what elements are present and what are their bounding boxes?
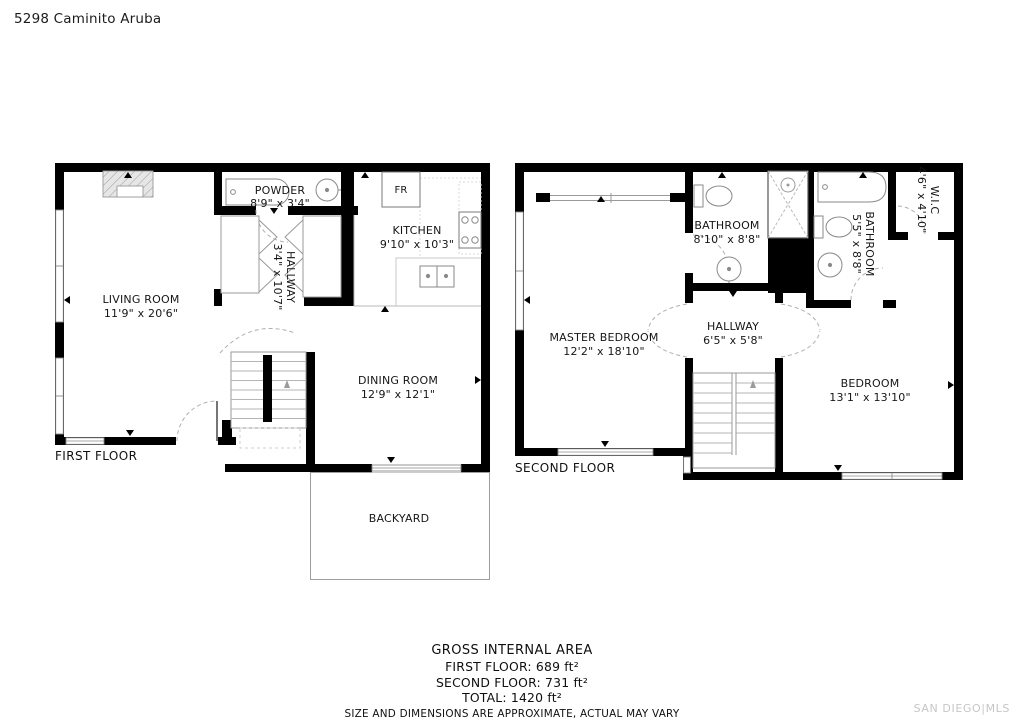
wic-label: W.I.C: [928, 186, 941, 215]
summary-disclaimer: SIZE AND DIMENSIONS ARE APPROXIMATE, ACT…: [0, 707, 1024, 721]
bathroom1-sink-icon: [717, 257, 741, 283]
summary-heading: GROSS INTERNAL AREA: [0, 643, 1024, 659]
bathroom2-label: BATHROOM: [863, 211, 876, 276]
powder-label: POWDER: [255, 184, 306, 197]
area-summary: GROSS INTERNAL AREA FIRST FLOOR: 689 ft²…: [0, 643, 1024, 721]
bedroom-dims: 13'1" x 13'10": [829, 391, 910, 404]
fridge-label: FR: [394, 185, 407, 196]
mls-watermark: SAN DIEGO|MLS: [914, 702, 1010, 715]
powder-dims: 8'9" x 3'4": [250, 197, 310, 210]
first-floor-plan: FR LIVING ROOM 11'9" x 20'6" POWDER 8'9"…: [55, 163, 490, 525]
hallway2-dims: 6'5" x 5'8": [703, 334, 763, 347]
master-closet-doors: [550, 193, 670, 203]
master-bedroom-label: MASTER BEDROOM: [549, 331, 658, 344]
wic-dims: 4'6" x 4'10": [915, 166, 928, 233]
living-room-dims: 11'9" x 20'6": [104, 307, 178, 320]
backyard-outline: [311, 473, 490, 580]
second-floor-label: SECOND FLOOR: [515, 461, 615, 475]
kitchen-label: KITCHEN: [392, 224, 441, 237]
summary-total: TOTAL: 1420 ft²: [0, 690, 1024, 706]
summary-first-floor: FIRST FLOOR: 689 ft²: [0, 659, 1024, 675]
hallway2-label: HALLWAY: [707, 320, 759, 333]
second-floor-plan: MASTER BEDROOM 12'2" x 18'10" BATHROOM 8…: [515, 163, 963, 480]
staircase-first-floor: [231, 352, 306, 448]
fridge-box: FR: [382, 172, 420, 207]
bedroom-label: BEDROOM: [841, 377, 900, 390]
master-bedroom-dims: 12'2" x 18'10": [563, 345, 644, 358]
staircase-second-floor: [693, 373, 775, 468]
hallway1-dims: 3'4" x 10'7": [271, 243, 284, 310]
dining-room-dims: 12'9" x 12'1": [361, 388, 435, 401]
dining-room-label: DINING ROOM: [358, 374, 438, 387]
bathroom1-dims: 8'10" x 8'8": [693, 233, 760, 246]
living-room-label: LIVING ROOM: [102, 293, 179, 306]
first-floor-label: FIRST FLOOR: [55, 449, 137, 463]
kitchen-sink-icon: [420, 266, 454, 287]
stove-icon: [459, 212, 481, 248]
bathroom1-label: BATHROOM: [694, 219, 759, 232]
bathroom2-sink-icon: [818, 253, 842, 277]
hallway1-label: HALLWAY: [284, 251, 297, 303]
floorplan-drawing: FR LIVING ROOM 11'9" x 20'6" POWDER 8'9"…: [0, 0, 1024, 724]
kitchen-dims: 9'10" x 10'3": [380, 238, 454, 251]
bathroom2-dims: 5'5" x 8'8": [850, 214, 863, 274]
summary-second-floor: SECOND FLOOR: 731 ft²: [0, 675, 1024, 691]
shower-icon: [768, 171, 808, 238]
powder-sink-icon: [316, 179, 341, 201]
bathroom2-toilet-icon: [814, 216, 852, 238]
backyard-label: BACKYARD: [369, 512, 429, 525]
floorplan-page: 5298 Caminito Aruba: [0, 0, 1024, 724]
bathroom2-bathtub-icon: [818, 172, 886, 202]
bathroom1-toilet-icon: [694, 185, 732, 207]
